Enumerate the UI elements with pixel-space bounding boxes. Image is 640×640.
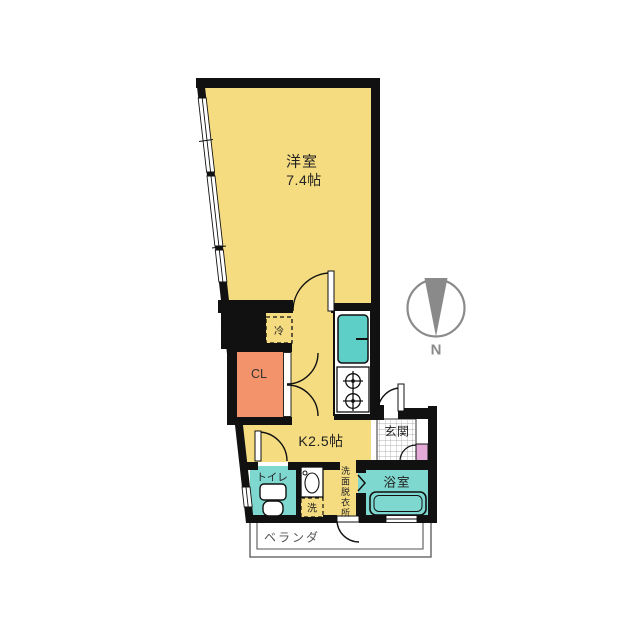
compass-n-label: N xyxy=(431,342,442,359)
bathroom-label: 浴室 xyxy=(383,472,410,491)
closet-label: CL xyxy=(251,365,267,384)
refrigerator-label: 冷 xyxy=(274,323,284,338)
kitchen-counter xyxy=(334,310,371,415)
western-room-label: 洋室 xyxy=(286,151,318,172)
compass-needle xyxy=(425,278,448,337)
western-room xyxy=(205,88,371,305)
floor-plan-canvas: 洋室 7.4帖 K2.5帖 玄関 トイレ 浴室 冷 洗 ベランダ N CL 洗面… xyxy=(0,0,640,640)
washer-label: 洗 xyxy=(307,500,317,515)
veranda-label: ベランダ xyxy=(264,529,320,546)
washbasin xyxy=(301,467,323,497)
toilet-fixture xyxy=(260,484,286,516)
washroom-label: 洗面脱衣所 xyxy=(339,466,352,522)
kitchen-label: K2.5帖 xyxy=(298,431,343,451)
shoe-cabinet xyxy=(416,444,428,461)
bathtub xyxy=(370,492,426,515)
entrance-label: 玄関 xyxy=(384,423,409,440)
toilet-label: トイレ xyxy=(256,470,288,485)
compass xyxy=(408,278,465,337)
western-room-size-label: 7.4帖 xyxy=(286,170,321,190)
